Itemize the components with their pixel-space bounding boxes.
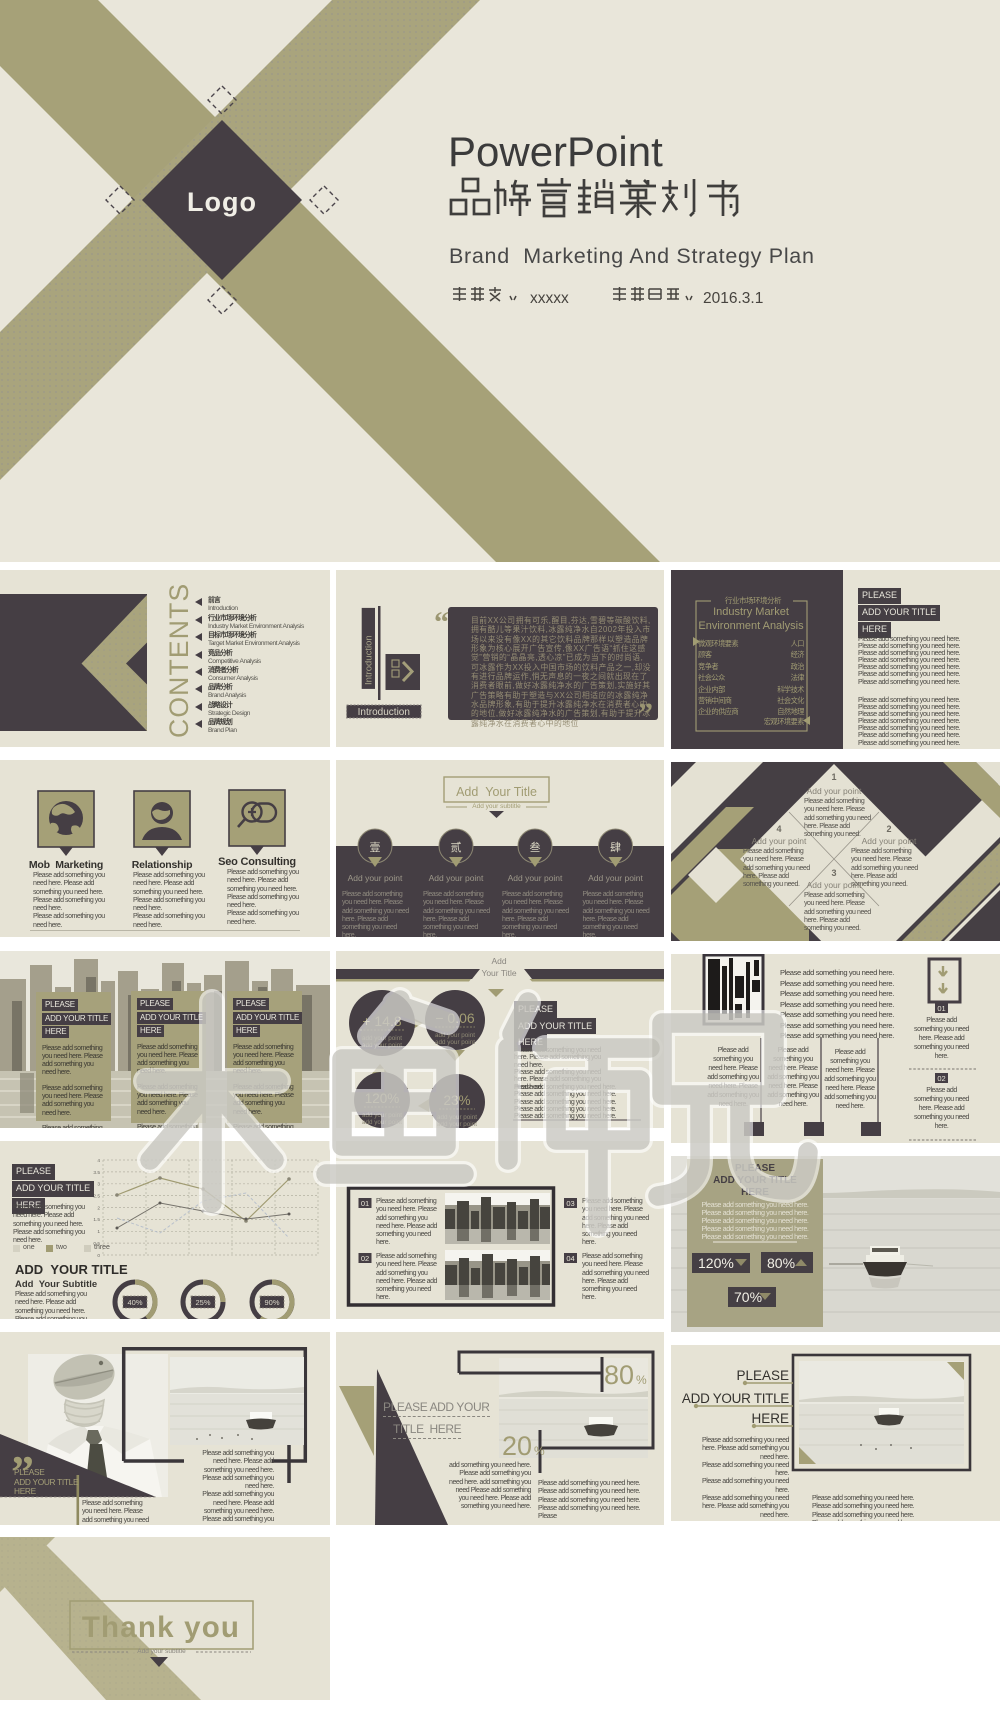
- svg-text:01: 01: [937, 1004, 945, 1013]
- svg-text:90%: 90%: [264, 1298, 279, 1307]
- svg-text:add your point: add your point: [437, 1121, 477, 1128]
- svg-text:80: 80: [604, 1360, 634, 1390]
- svg-text:add your point: add your point: [435, 1032, 475, 1039]
- svg-text:Brand Marketing And Strategy: Brand Marketing And Strategy Plan: [449, 244, 815, 268]
- svg-text:CONTENTS: CONTENTS: [164, 583, 194, 738]
- svg-text:03: 03: [566, 1199, 574, 1208]
- svg-text:Thank you: Thank you: [82, 1611, 240, 1644]
- svg-text:add your point: add your point: [362, 1035, 402, 1042]
- svg-text:4: 4: [97, 1158, 100, 1164]
- svg-text:Introduction: Introduction: [364, 635, 375, 685]
- svg-text:120%: 120%: [698, 1255, 734, 1271]
- svg-text:01: 01: [361, 1199, 369, 1208]
- svg-text:%: %: [636, 1373, 647, 1387]
- svg-text:+ 14.8: + 14.8: [362, 1013, 402, 1029]
- svg-text:20: 20: [502, 1431, 532, 1461]
- svg-text:23%: 23%: [443, 1093, 470, 1108]
- svg-text:add your point: add your point: [362, 1042, 402, 1049]
- svg-text:− 0.06: − 0.06: [435, 1010, 475, 1026]
- svg-text:04: 04: [566, 1254, 574, 1263]
- svg-text:add your point: add your point: [362, 1119, 402, 1126]
- svg-text:2: 2: [97, 1206, 100, 1212]
- svg-text:PowerPoint: PowerPoint: [448, 128, 663, 175]
- svg-text:0: 0: [97, 1253, 100, 1259]
- svg-text:add your point: add your point: [362, 1112, 402, 1119]
- svg-text:02: 02: [937, 1074, 945, 1083]
- svg-text:120%: 120%: [365, 1091, 400, 1106]
- svg-text:add your point: add your point: [435, 1039, 475, 1046]
- svg-text:xxxxx: xxxxx: [530, 290, 569, 307]
- svg-text:1: 1: [97, 1229, 100, 1235]
- svg-text:70%: 70%: [734, 1289, 762, 1305]
- svg-text:40%: 40%: [127, 1298, 142, 1307]
- svg-text:80%: 80%: [767, 1255, 795, 1271]
- svg-text:2016.3.1: 2016.3.1: [703, 290, 763, 307]
- svg-text:Logo: Logo: [187, 187, 257, 217]
- svg-text:1.5: 1.5: [93, 1217, 100, 1223]
- svg-text:add your point: add your point: [437, 1114, 477, 1121]
- svg-text:“: “: [434, 606, 449, 639]
- svg-text:Introduction: Introduction: [358, 707, 410, 718]
- svg-text:3: 3: [97, 1182, 100, 1188]
- svg-text:02: 02: [361, 1254, 369, 1263]
- svg-text:2.5: 2.5: [93, 1194, 100, 1200]
- svg-text:%: %: [534, 1444, 545, 1458]
- svg-text:3.5: 3.5: [93, 1170, 100, 1176]
- svg-text:25%: 25%: [195, 1298, 210, 1307]
